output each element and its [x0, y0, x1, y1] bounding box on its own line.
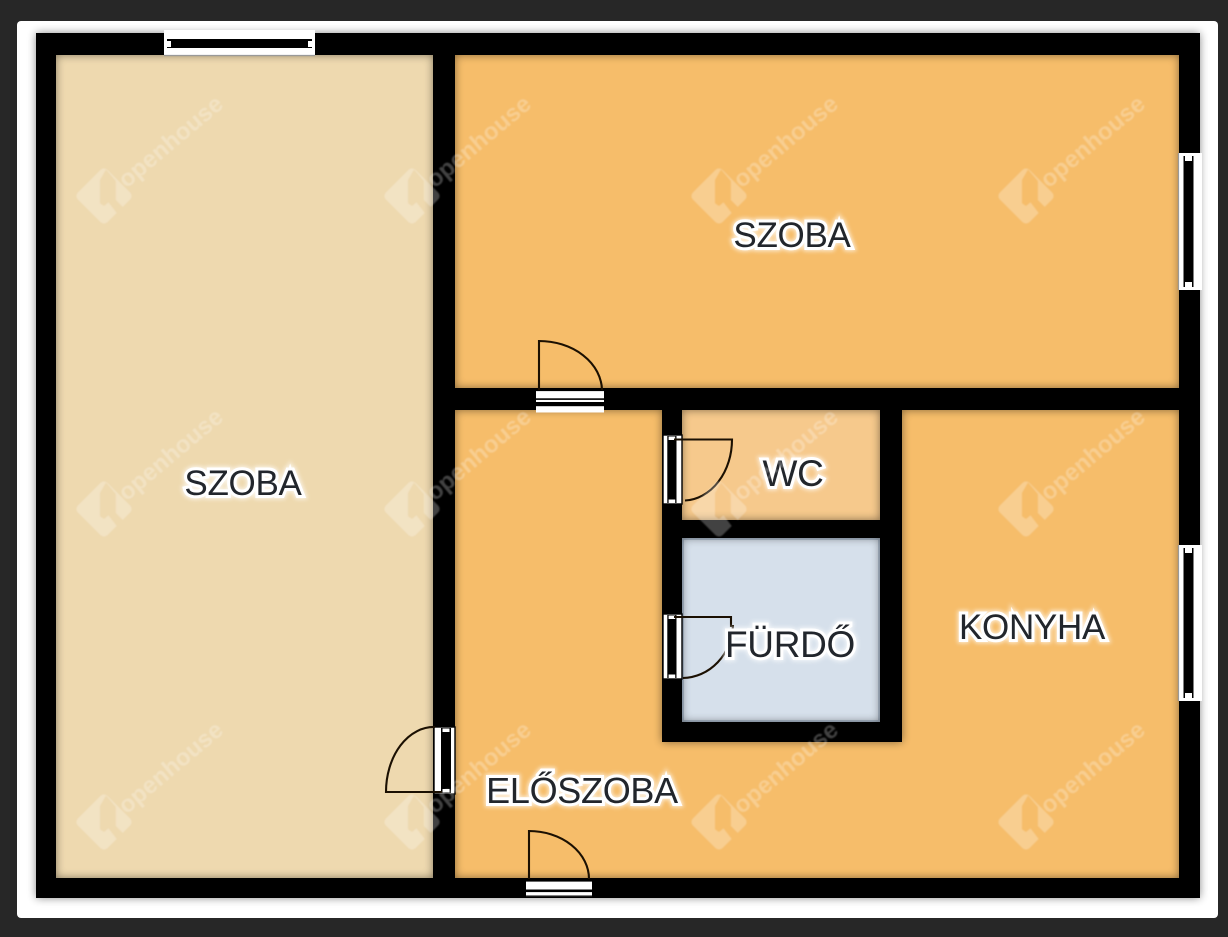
svg-text:SZOBA: SZOBA [184, 464, 302, 503]
svg-text:FÜRDŐ: FÜRDŐ [725, 624, 855, 665]
svg-text:KONYHA: KONYHA [959, 608, 1106, 647]
svg-text:ELŐSZOBA: ELŐSZOBA [486, 770, 678, 811]
